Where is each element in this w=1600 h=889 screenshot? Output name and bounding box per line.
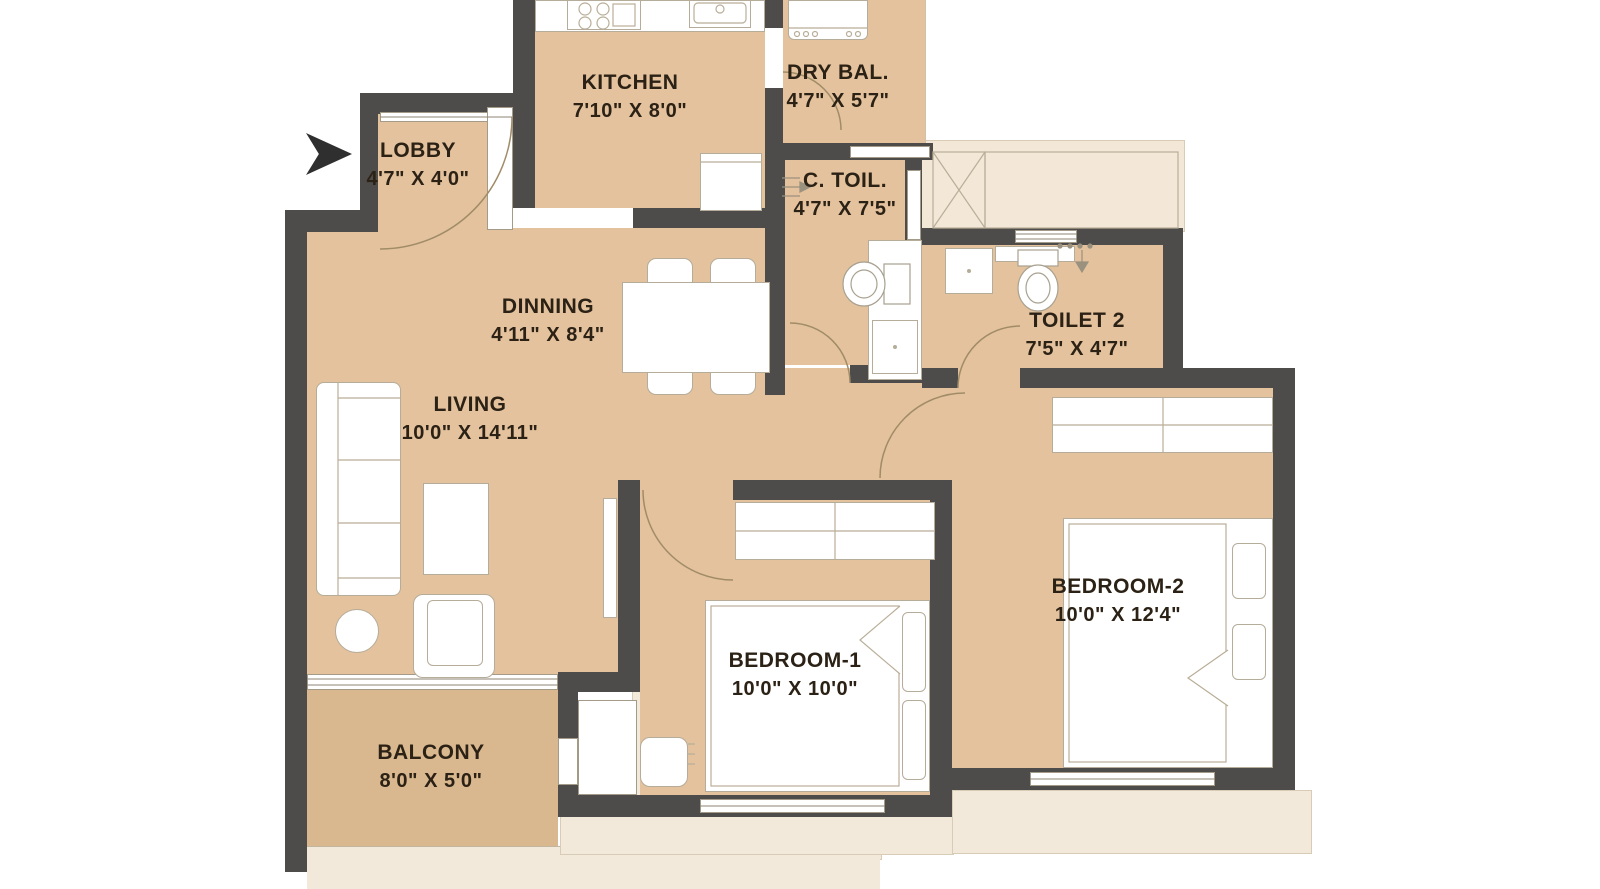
room-label-drybalcony: DRY BAL. 4'7" X 5'7" bbox=[758, 58, 918, 116]
duct-box bbox=[578, 700, 637, 795]
room-label-balcony: BALCONY 8'0" X 5'0" bbox=[341, 738, 521, 796]
room-name: BEDROOM-1 bbox=[705, 646, 885, 675]
basin-drain-dot bbox=[967, 269, 971, 273]
room-label-bedroom2: BEDROOM-2 10'0" X 12'4" bbox=[1028, 572, 1208, 630]
pillow bbox=[902, 612, 926, 692]
door-bedroom1-lower[interactable] bbox=[558, 738, 578, 785]
room-label-living: LIVING 10'0" X 14'11" bbox=[380, 390, 560, 448]
room-name: DINNING bbox=[468, 292, 628, 321]
room-label-dining: DINNING 4'11" X 8'4" bbox=[468, 292, 628, 350]
window-drybalcony bbox=[850, 146, 930, 158]
room-name: TOILET 2 bbox=[997, 306, 1157, 335]
room-name: C. TOIL. bbox=[765, 166, 925, 195]
wall-segment bbox=[1163, 228, 1183, 388]
pillow bbox=[1232, 624, 1266, 680]
service-ledge bbox=[920, 140, 1185, 232]
tv-unit bbox=[603, 498, 617, 618]
room-name: LIVING bbox=[380, 390, 560, 419]
room-label-common-toilet: C. TOIL. 4'7" X 7'5" bbox=[765, 166, 925, 224]
wardrobe-bedroom1 bbox=[735, 502, 935, 560]
wall-segment bbox=[618, 480, 640, 690]
room-name: KITCHEN bbox=[530, 68, 730, 97]
washing-machine bbox=[788, 0, 868, 40]
room-dims: 10'0" X 12'4" bbox=[1028, 601, 1208, 630]
room-label-bedroom1: BEDROOM-1 10'0" X 10'0" bbox=[705, 646, 885, 704]
wall-segment bbox=[558, 692, 578, 738]
room-name: DRY BAL. bbox=[758, 58, 918, 87]
refrigerator bbox=[700, 153, 762, 211]
room-label-toilet2: TOILET 2 7'5" X 4'7" bbox=[997, 306, 1157, 364]
hob-stove bbox=[567, 0, 641, 30]
chair-bedroom1 bbox=[640, 737, 688, 787]
armchair-seat bbox=[427, 600, 483, 666]
room-name: LOBBY bbox=[338, 136, 498, 165]
kitchen-sink bbox=[689, 0, 751, 28]
wall-segment bbox=[1273, 368, 1295, 790]
floor-plan: KITCHEN 7'10" X 8'0" DRY BAL. 4'7" X 5'7… bbox=[0, 0, 1600, 889]
window-bedroom2 bbox=[1030, 772, 1215, 786]
room-dims: 4'7" X 4'0" bbox=[338, 165, 498, 194]
room-label-kitchen: KITCHEN 7'10" X 8'0" bbox=[530, 68, 730, 126]
pillow bbox=[1232, 543, 1266, 599]
wall-segment bbox=[558, 672, 640, 692]
toilet-counter bbox=[995, 246, 1075, 262]
room-dims: 7'5" X 4'7" bbox=[997, 335, 1157, 364]
wall-segment bbox=[285, 210, 307, 872]
pillow bbox=[902, 700, 926, 780]
room-dims: 4'11" X 8'4" bbox=[468, 321, 628, 350]
louver-window-toilet2 bbox=[1015, 230, 1077, 243]
wall-segment bbox=[633, 208, 783, 228]
toilet2-door-gap-floor bbox=[952, 368, 1020, 388]
window-bedroom1 bbox=[700, 799, 885, 813]
wardrobe-bedroom2 bbox=[1052, 397, 1273, 453]
basin-drain-dot bbox=[893, 345, 897, 349]
side-table-round bbox=[335, 609, 379, 653]
room-dims: 7'10" X 8'0" bbox=[530, 97, 730, 126]
wall-segment bbox=[1020, 368, 1163, 388]
room-dims: 4'7" X 7'5" bbox=[765, 195, 925, 224]
room-dims: 10'0" X 14'11" bbox=[380, 419, 560, 448]
room-dims: 4'7" X 5'7" bbox=[758, 87, 918, 116]
deck-below-bedroom2 bbox=[952, 790, 1312, 854]
center-table bbox=[423, 483, 489, 575]
wall-segment bbox=[765, 0, 783, 28]
room-label-lobby: LOBBY 4'7" X 4'0" bbox=[338, 136, 498, 194]
dining-table bbox=[622, 282, 770, 373]
room-dims: 8'0" X 5'0" bbox=[341, 767, 521, 796]
room-dims: 10'0" X 10'0" bbox=[705, 675, 885, 704]
room-name: BALCONY bbox=[341, 738, 521, 767]
wall-segment bbox=[922, 368, 958, 388]
deck-below-bedroom1 bbox=[560, 815, 954, 855]
wall-segment bbox=[733, 480, 952, 500]
room-name: BEDROOM-2 bbox=[1028, 572, 1208, 601]
